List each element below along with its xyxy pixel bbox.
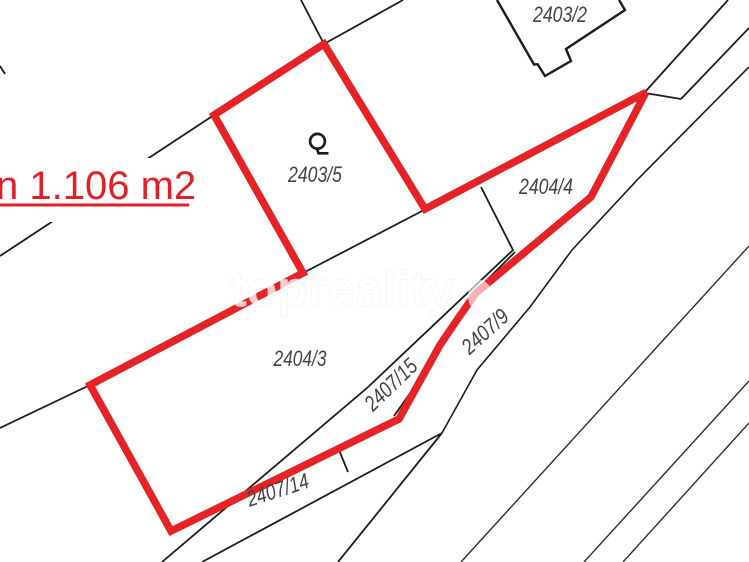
svg-text:2403/2: 2403/2 bbox=[532, 2, 587, 27]
svg-text:topreality: topreality bbox=[230, 261, 455, 317]
svg-text:n 1.106 m2: n 1.106 m2 bbox=[0, 164, 196, 208]
svg-text:2403/5: 2403/5 bbox=[287, 162, 342, 187]
svg-text:2404/3: 2404/3 bbox=[273, 346, 327, 371]
svg-text:2404/4: 2404/4 bbox=[518, 174, 573, 199]
